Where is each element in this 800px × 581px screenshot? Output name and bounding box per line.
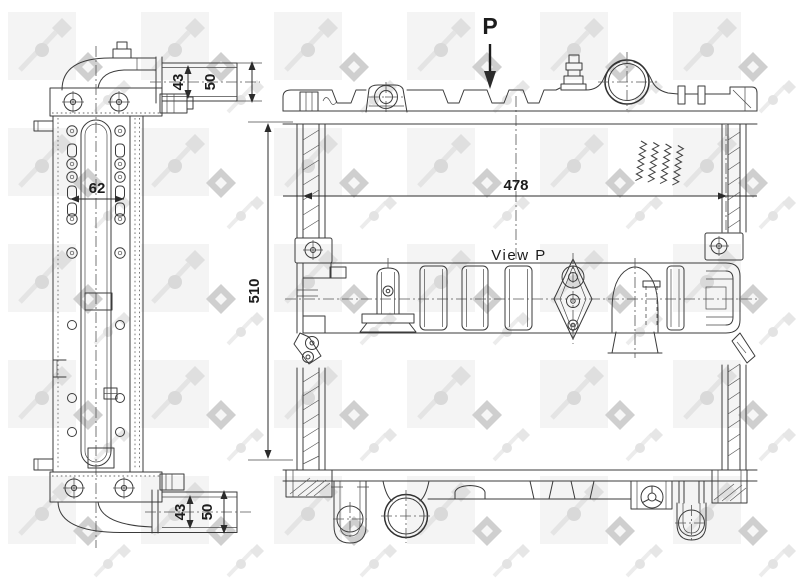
nrf-watermark-layer (0, 0, 800, 581)
dim-top-pipe-outer: 50 (202, 74, 219, 91)
dim-bottom-pipe-inner: 43 (172, 504, 189, 521)
dim-bottom-pipe-outer: 50 (199, 504, 216, 521)
dim-top-pipe-inner: 43 (170, 74, 187, 91)
drawing-canvas: P View P 478 510 62 43 50 (0, 0, 800, 581)
view-p-label: View P (491, 247, 546, 264)
dim-hole-spacing: 62 (89, 180, 106, 197)
dim-front-width: 478 (503, 177, 528, 194)
direction-p-label: P (482, 13, 497, 39)
dim-front-height: 510 (246, 278, 263, 303)
radiator-technical-drawing: P View P 478 510 62 43 50 (0, 0, 800, 581)
